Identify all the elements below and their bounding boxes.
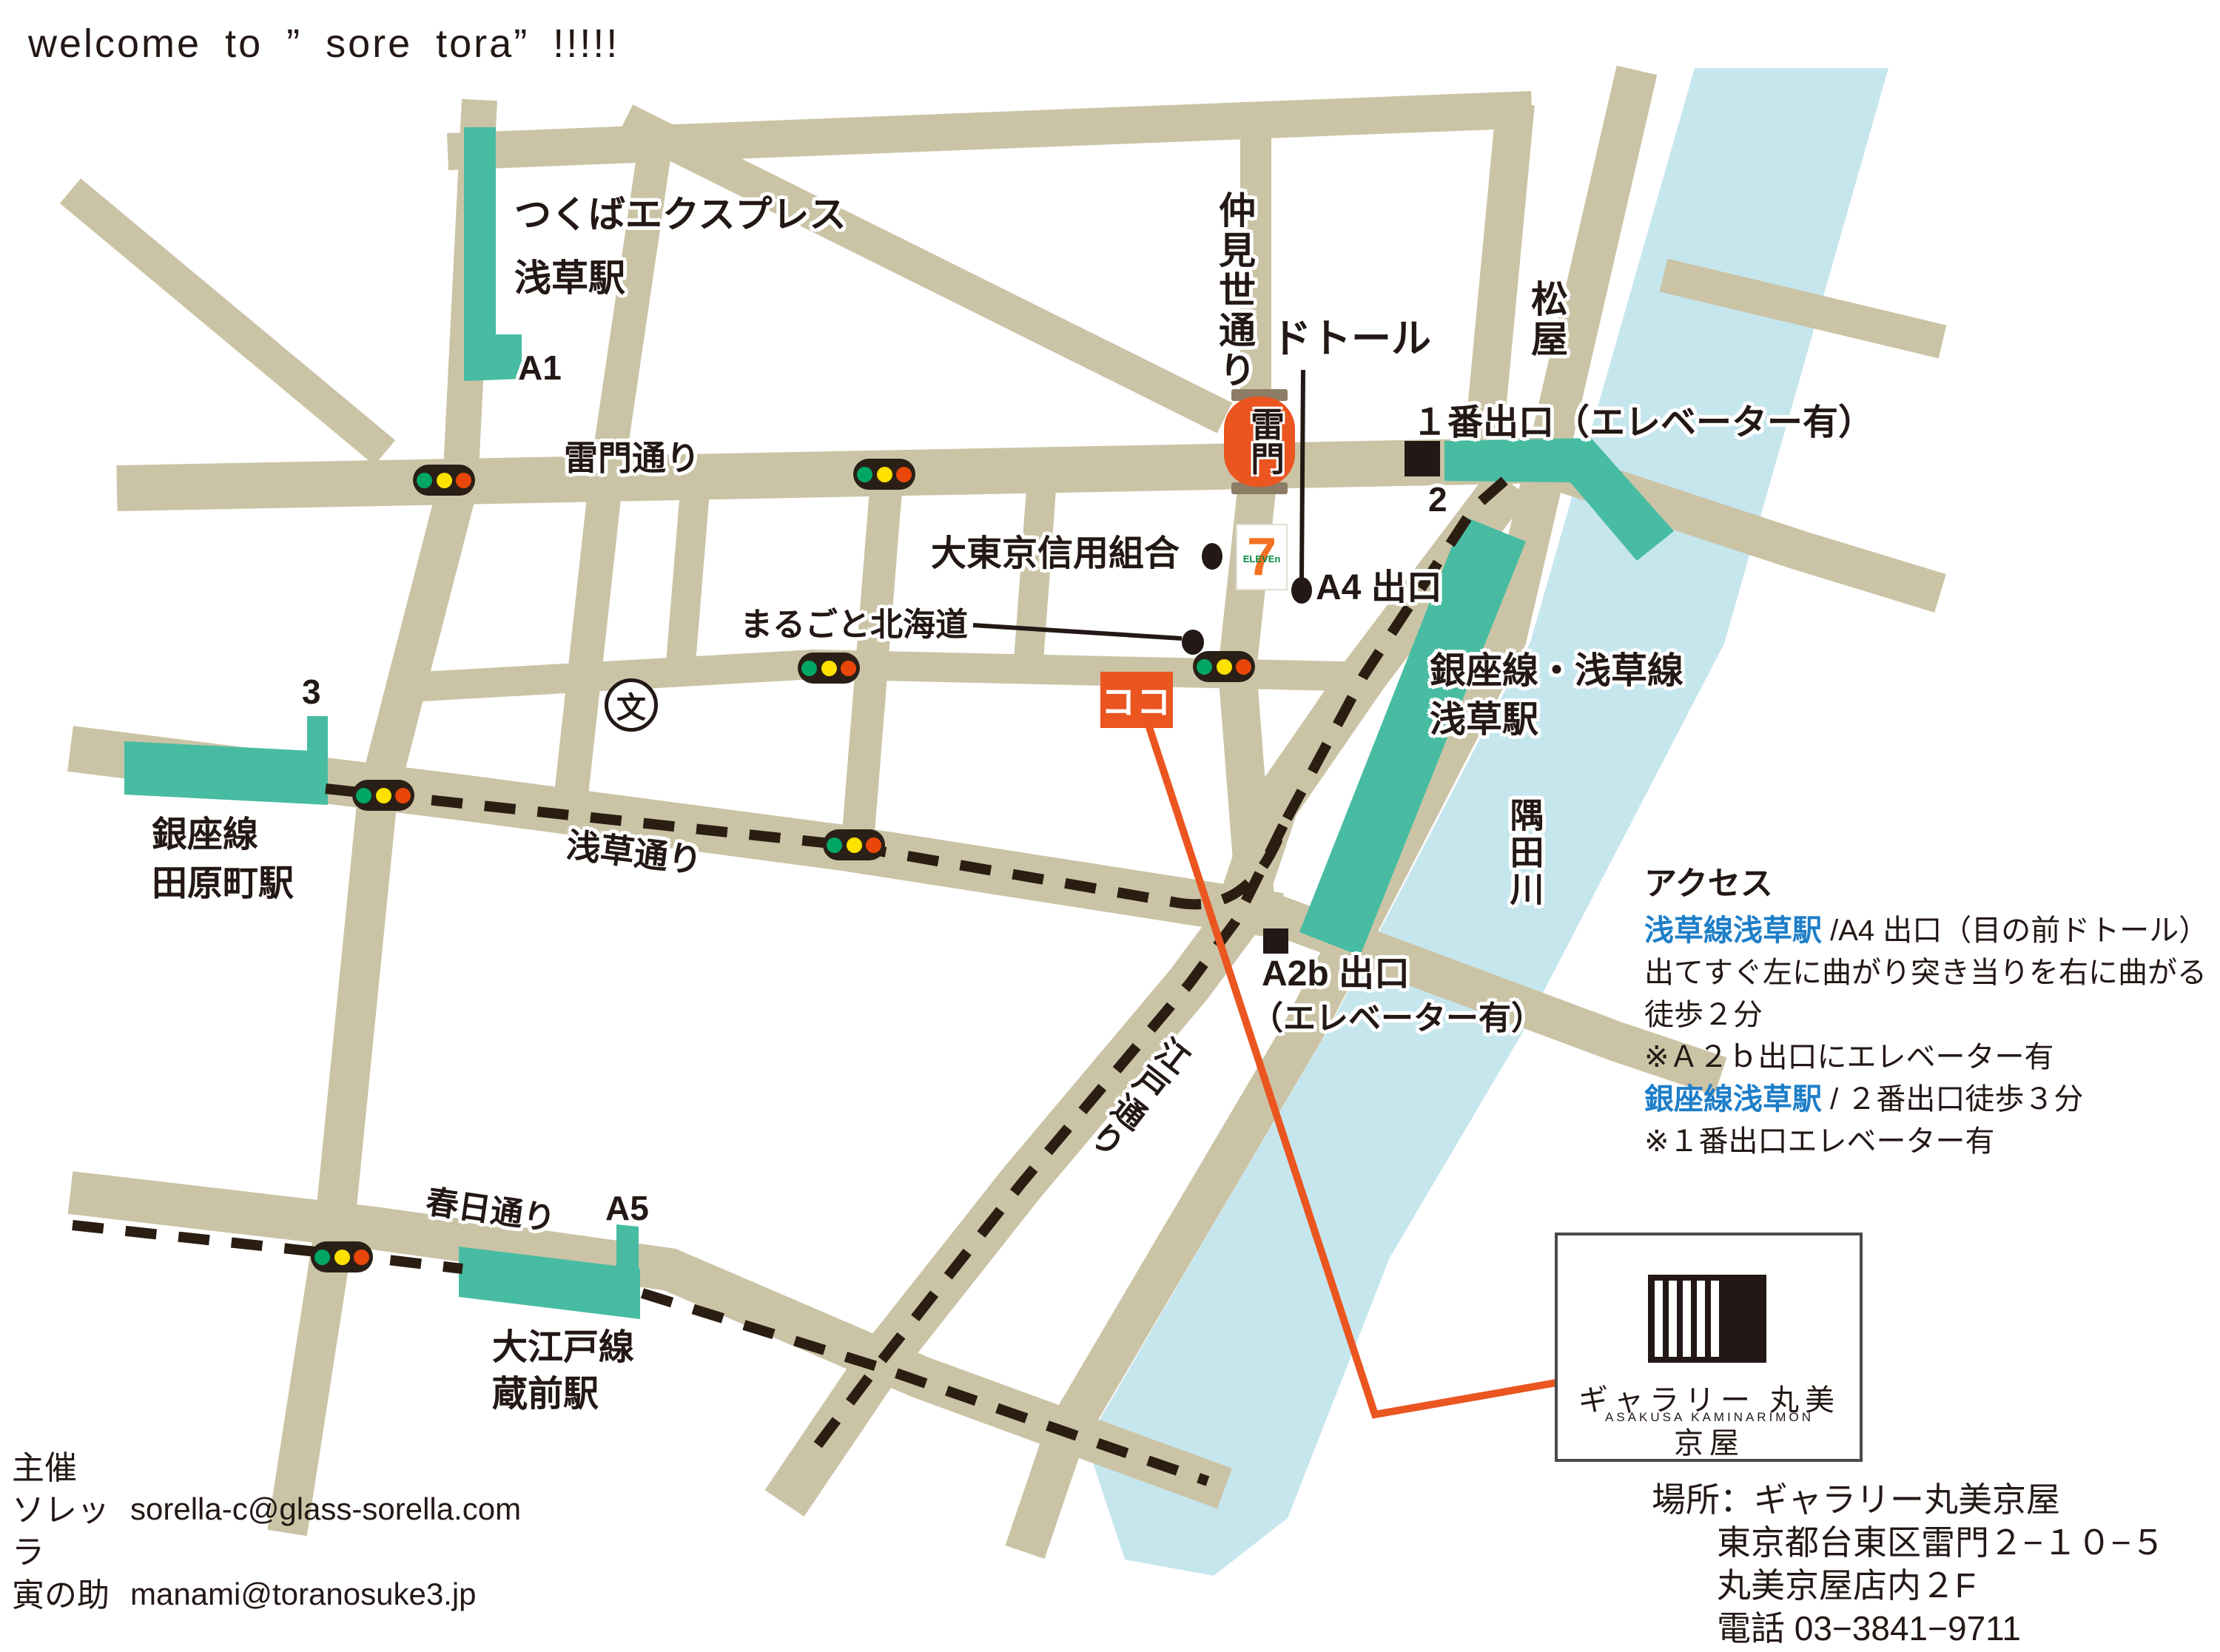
- venue-info-block: 場所：ギャラリー丸美京屋 東京都台東区雷門２−１０−５ 丸美京屋店内２F 電話 …: [1652, 1478, 2165, 1650]
- a2b-exit-marker: [1263, 928, 1288, 954]
- kuramae-station-label: 蔵前駅: [492, 1375, 599, 1415]
- eleven-icon: ELEVEn: [1237, 553, 1286, 564]
- organizer-name: ソレッラ: [12, 1489, 130, 1574]
- a2b-elevator-label: （エレベーター有）: [1251, 1000, 1544, 1036]
- school-symbol-text: 文: [616, 684, 646, 726]
- ginza-line-label: 銀座線: [152, 815, 258, 855]
- venue-name: 場所：ギャラリー丸美京屋: [1652, 1478, 2165, 1521]
- traffic-light: [1193, 651, 1255, 682]
- traffic-light: [352, 780, 414, 811]
- organizer-name: 寅の助: [12, 1574, 130, 1616]
- gallery-logo-subtitle: ASAKUSA KAMINARIMON: [1561, 1410, 1857, 1425]
- road-northwest-diagonal: [70, 191, 385, 453]
- oedo-line-label: 大江戸線: [492, 1328, 634, 1368]
- road-kaminarimon-dori: [117, 460, 1550, 488]
- organizer-block: 主催 ソレッラ sorella-c@glass-sorella.com 寅の助 …: [12, 1447, 521, 1616]
- logo-stripe: [1669, 1281, 1677, 1357]
- access-text: 出てすぐ左に曲がり突き当りを右に曲がる: [1644, 957, 2207, 989]
- logo-stripe: [1711, 1281, 1719, 1357]
- road-west-vertical: [287, 482, 459, 1533]
- access-line: 出てすぐ左に曲がり突き当りを右に曲がる: [1644, 952, 2220, 994]
- organizer-email: sorella-c@glass-sorella.com: [130, 1489, 521, 1574]
- access-text: /A4 出口（目の前ドトール）: [1822, 914, 2208, 947]
- logo-stripe: [1655, 1281, 1663, 1357]
- traffic-light: [823, 829, 885, 860]
- page-title: welcome to ” sore tora” !!!!!: [28, 21, 619, 67]
- daitokyo-dot: [1202, 543, 1222, 570]
- exit-a4-label: A4 出口: [1316, 568, 1442, 608]
- asakusa-line-station-name: 浅草線浅草駅: [1644, 914, 1822, 947]
- access-line: 銀座線浅草駅 / ２番出口徒歩３分: [1644, 1079, 2220, 1121]
- doutor-label: ドトール: [1271, 317, 1431, 361]
- exit1-label: １番出口（エレベーター有）: [1412, 403, 1874, 443]
- traffic-light: [311, 1241, 373, 1272]
- access-text: / ２番出口徒歩３分: [1822, 1083, 2083, 1116]
- road-top: [448, 109, 1532, 152]
- ginza-line-station-name: 銀座線浅草駅: [1644, 1083, 1822, 1116]
- school-symbol: 文: [605, 678, 658, 732]
- road-diagonal-to-kaminarimon: [625, 120, 1225, 418]
- access-line: 浅草線浅草駅 /A4 出口（目の前ドトール）: [1644, 910, 2220, 952]
- koko-here-text: ココ: [1101, 675, 1172, 724]
- tsukuba-asakusa-station-label: 浅草駅: [514, 257, 625, 299]
- organizer-title: 主催: [12, 1447, 521, 1489]
- marugoto-dot: [1182, 630, 1204, 655]
- tawaramachi-platform: [124, 741, 328, 805]
- road-vertical-5: [1027, 479, 1042, 681]
- marugoto-leader-line: [973, 625, 1182, 638]
- organizer-row: 寅の助 manami@toranosuke3.jp: [12, 1574, 521, 1616]
- koko-here-marker: ココ: [1100, 672, 1173, 728]
- logo-mark: [1648, 1275, 1766, 1363]
- traffic-light: [853, 459, 915, 490]
- sumida-river-label: 隅田川: [1505, 798, 1544, 908]
- access-line: 徒歩２分: [1644, 994, 2220, 1036]
- organizer-row: ソレッラ sorella-c@glass-sorella.com: [12, 1489, 521, 1574]
- matsuya-label: 松屋: [1526, 280, 1567, 360]
- access-info-block: アクセス 浅草線浅草駅 /A4 出口（目の前ドトール） 出てすぐ左に曲がり突き当…: [1644, 857, 2220, 1163]
- kaminarimon-lantern-text: 雷門: [1240, 407, 1289, 475]
- kaminarimon-dori-label: 雷門通り: [564, 439, 700, 478]
- tawaramachi-station-label: 田原町駅: [152, 864, 294, 904]
- doutor-dot: [1291, 577, 1312, 604]
- exit3-label: 3: [302, 673, 321, 712]
- exit1-marker: [1405, 441, 1440, 476]
- asakusa-station-label: 浅草駅: [1430, 700, 1538, 741]
- logo-stripe: [1697, 1281, 1705, 1357]
- access-line: ※Ａ２ｂ出口にエレベーター有: [1644, 1036, 2220, 1079]
- road-vertical-3: [679, 482, 696, 681]
- venue-address: 東京都台東区雷門２−１０−５: [1652, 1521, 2165, 1564]
- traffic-light: [798, 653, 860, 684]
- exit-a1-label: A1: [518, 349, 562, 388]
- marugoto-hokkaido-label: まるごと北海道: [740, 607, 968, 643]
- ginza-asakusa-lines-label: 銀座線・浅草線: [1430, 651, 1683, 692]
- seven-eleven-sign: 7 ELEVEn: [1236, 524, 1288, 590]
- access-text: ※Ａ２ｂ出口にエレベーター有: [1644, 1041, 2054, 1073]
- access-map-page: welcome to ” sore tora” !!!!! つくばエクスプレス …: [0, 0, 2220, 1652]
- access-title: アクセス: [1644, 857, 2220, 904]
- venue-floor: 丸美京屋店内２F: [1652, 1564, 2165, 1607]
- nakamise-dori-label: 仲見世通り: [1214, 191, 1255, 391]
- a2b-exit-label: A2b 出口: [1262, 954, 1410, 994]
- access-text: 徒歩２分: [1644, 999, 1763, 1031]
- map-canvas: [0, 0, 2220, 1652]
- doutor-leader-line: [1302, 370, 1303, 579]
- venue-phone: 電話 03−3841−9711: [1652, 1607, 2165, 1650]
- exit-a5-label: A5: [605, 1190, 649, 1228]
- traffic-light: [413, 465, 475, 496]
- tsukuba-express-label: つくばエクスプレス: [514, 194, 847, 235]
- logo-stripe: [1683, 1281, 1691, 1357]
- exit2-label: 2: [1428, 481, 1447, 519]
- access-text: ※１番出口エレベーター有: [1644, 1125, 1995, 1158]
- organizer-email: manami@toranosuke3.jp: [130, 1574, 477, 1616]
- access-line: ※１番出口エレベーター有: [1644, 1121, 2220, 1163]
- daitokyo-bank-label: 大東京信用組合: [931, 534, 1180, 574]
